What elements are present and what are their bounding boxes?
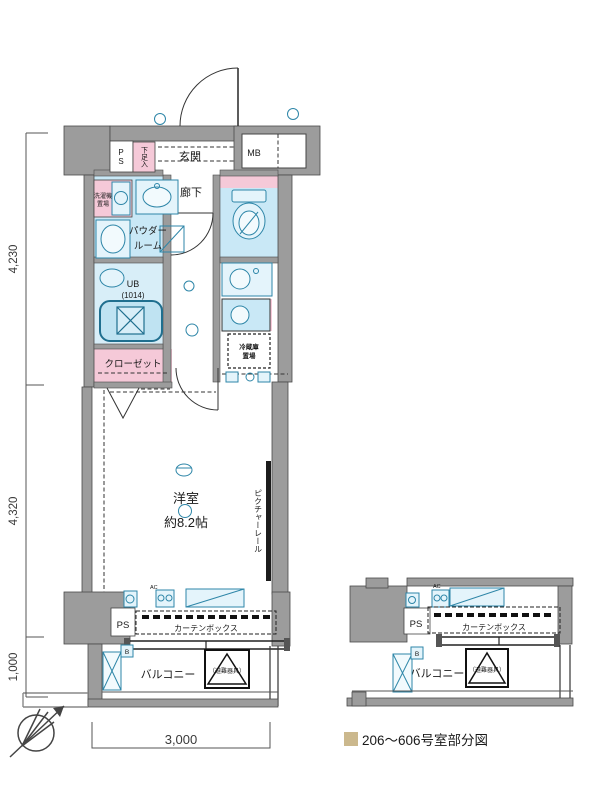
partial-pipe-space-label: PS <box>410 619 423 630</box>
ceiling-light-icon <box>176 464 192 476</box>
partial-drain-label: B <box>415 651 419 658</box>
water-heater-icon <box>406 593 419 607</box>
shoe-cabinet-label: 下足入 <box>141 147 149 168</box>
western-room-area: 洋室 約8.2帖 ピクチャーレール <box>104 368 271 592</box>
fridge-label-2: 置場 <box>243 351 257 360</box>
dim-height-lower: 1,000 <box>8 653 20 682</box>
dim-height-upper: 4,230 <box>8 245 20 274</box>
pipe-space-bottom-label: PS <box>117 620 130 631</box>
main-plan: MB PS 下足入 玄関 廊下 洗 <box>23 68 320 707</box>
ceiling-light-icon <box>184 281 194 291</box>
unit-bath-size-label: (1014) <box>121 291 144 300</box>
porch-light-icon <box>288 109 299 120</box>
north-arrow-icon <box>10 706 64 757</box>
meter-box-label: MB <box>247 148 261 158</box>
picture-rail-bar <box>266 461 271 581</box>
washer-label-1: 洗濯機 <box>94 192 112 200</box>
powder-room-label-2: ルーム <box>134 241 162 252</box>
hallway-label: 廊下 <box>180 185 202 199</box>
bath-sink-icon <box>100 269 124 287</box>
legend-swatch <box>344 732 358 746</box>
doorbell-icon <box>155 114 166 125</box>
partial-evac-hatch-label: （避難器具） <box>469 666 505 674</box>
sliding-window <box>436 634 560 647</box>
balcony-label: バルコニー <box>141 668 196 681</box>
washer-label-2: 置場 <box>97 200 109 208</box>
drain-label: B <box>125 649 129 656</box>
outlet-icon <box>156 590 174 607</box>
toilet-tank-icon <box>232 190 266 202</box>
balcony-area: バルコニー （避難器具） B <box>23 645 278 707</box>
partial-curtain-box-label: カーテンボックス <box>462 623 526 632</box>
floor-plan-drawing: MB PS 下足入 玄関 廊下 洗 <box>0 0 600 800</box>
main-room-label-2: 約8.2帖 <box>164 515 208 530</box>
main-room-label-1: 洋室 <box>173 491 199 506</box>
partial-balcony-label: バルコニー <box>410 667 465 680</box>
entrance-door-arc <box>180 68 238 126</box>
entrance-label: 玄関 <box>179 149 201 163</box>
toilet-area <box>232 190 266 239</box>
legend: 206～606号室部分図 <box>344 732 488 748</box>
legend-label: 206～606号室部分図 <box>362 732 488 748</box>
floor-plan-page: MB PS 下足入 玄関 廊下 洗 <box>0 0 600 800</box>
meter-box: MB <box>242 134 306 168</box>
toilet-door-arc <box>171 213 213 255</box>
curtain-box-label: カーテンボックス <box>174 624 238 633</box>
partial-ac-label: AC <box>433 584 441 590</box>
picture-rail-label: ピクチャーレール <box>254 489 263 553</box>
ceiling-light-icon <box>186 324 198 336</box>
room-door-arc <box>176 368 218 410</box>
dim-width-bottom: 3,000 <box>165 732 198 747</box>
unit-bath-label: UB <box>127 279 140 289</box>
evac-hatch-label: （避難器具） <box>209 667 245 675</box>
pipe-space-top-label: PS <box>117 148 126 166</box>
dim-height-middle: 4,320 <box>8 497 20 526</box>
closet-label: クローゼット <box>104 358 161 370</box>
fridge-space <box>228 334 270 368</box>
room-bottom-area: PS AC カーテンボックス <box>111 585 290 651</box>
powder-room-label-1: パウダー <box>129 225 167 237</box>
partial-plan: PS AC カーテンボックス バルコニー （避難器具） B <box>347 578 573 706</box>
fridge-label-1: 冷蔵庫 <box>239 342 259 351</box>
